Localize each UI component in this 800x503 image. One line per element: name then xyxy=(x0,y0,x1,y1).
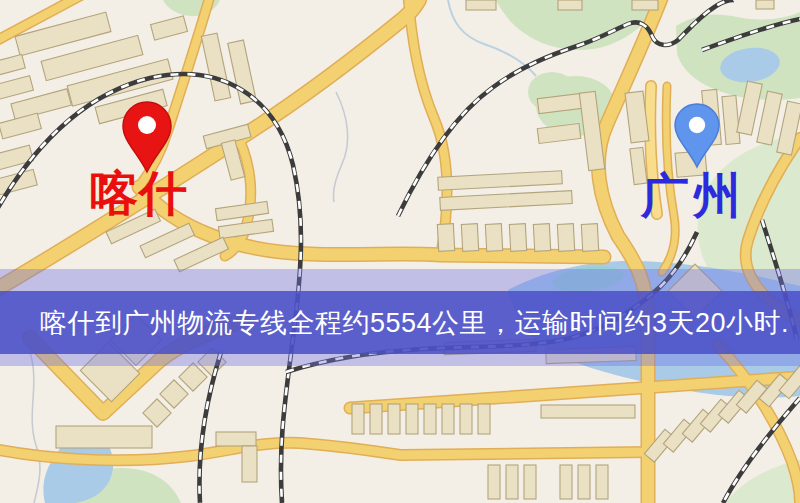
route-info-banner: 喀什到广州物流专线全程约5554公里，运输时间约3天20小时. xyxy=(0,269,800,366)
logistics-map-page: 喀什到广州物流专线全程约5554公里，运输时间约3天20小时. 喀什 广州 xyxy=(0,0,800,503)
origin-city-label: 喀什 xyxy=(90,170,188,218)
destination-pin-icon[interactable] xyxy=(671,102,723,172)
destination-city-label: 广州 xyxy=(641,172,745,220)
route-info-text: 喀什到广州物流专线全程约5554公里，运输时间约3天20小时. xyxy=(0,305,789,341)
route-info-banner-band: 喀什到广州物流专线全程约5554公里，运输时间约3天20小时. xyxy=(0,291,800,354)
map-canvas xyxy=(0,0,800,503)
